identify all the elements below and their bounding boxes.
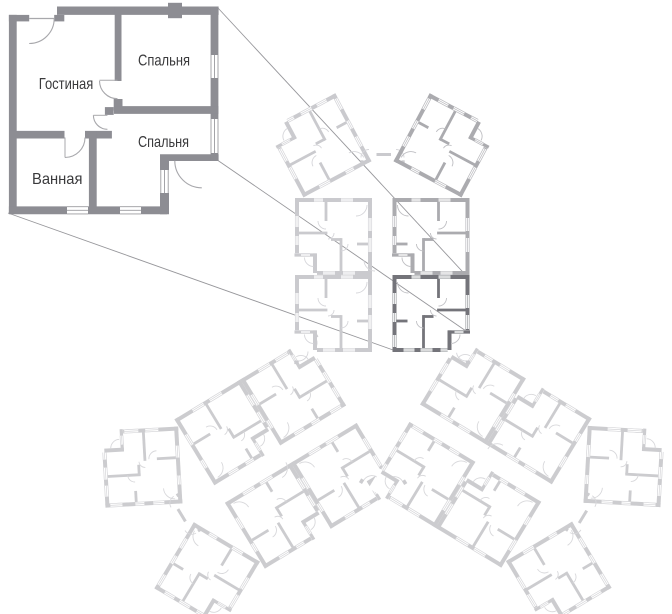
svg-text:Спальня: Спальня [138, 53, 190, 70]
svg-text:Гостиная: Гостиная [39, 76, 94, 93]
svg-text:Спальня: Спальня [138, 134, 189, 151]
svg-text:Ванная: Ванная [32, 171, 83, 188]
